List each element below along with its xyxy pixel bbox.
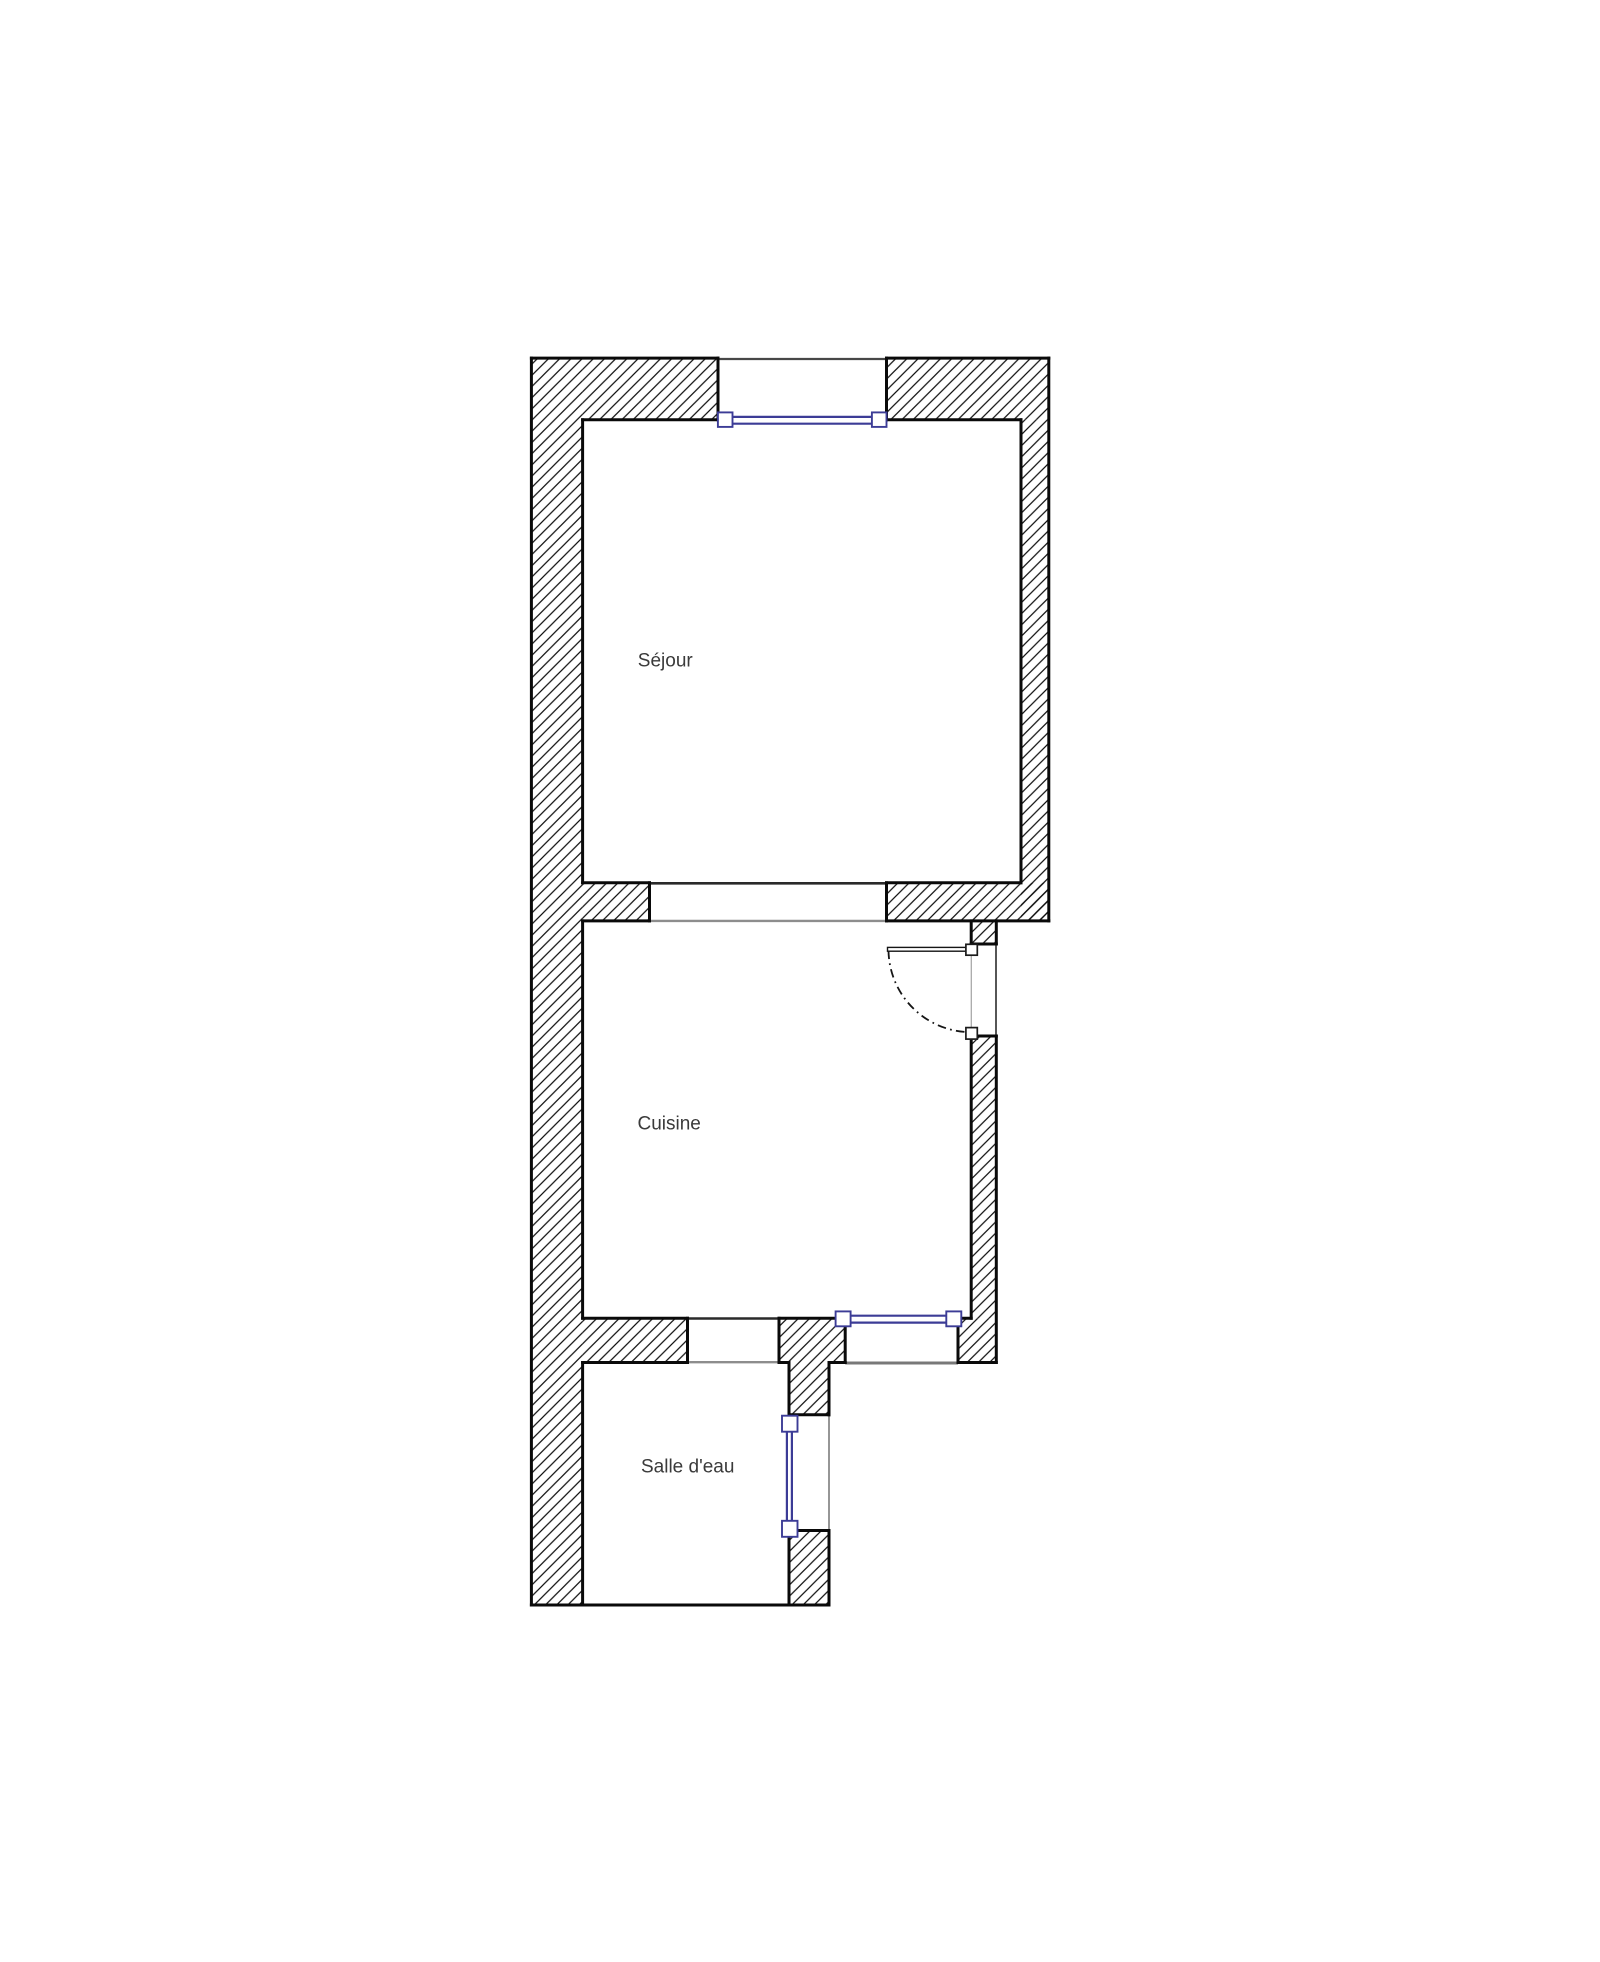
svg-text:Cuisine: Cuisine [638, 1114, 701, 1135]
svg-text:Salle d'eau: Salle d'eau [641, 1456, 734, 1477]
svg-text:Séjour: Séjour [638, 651, 694, 672]
